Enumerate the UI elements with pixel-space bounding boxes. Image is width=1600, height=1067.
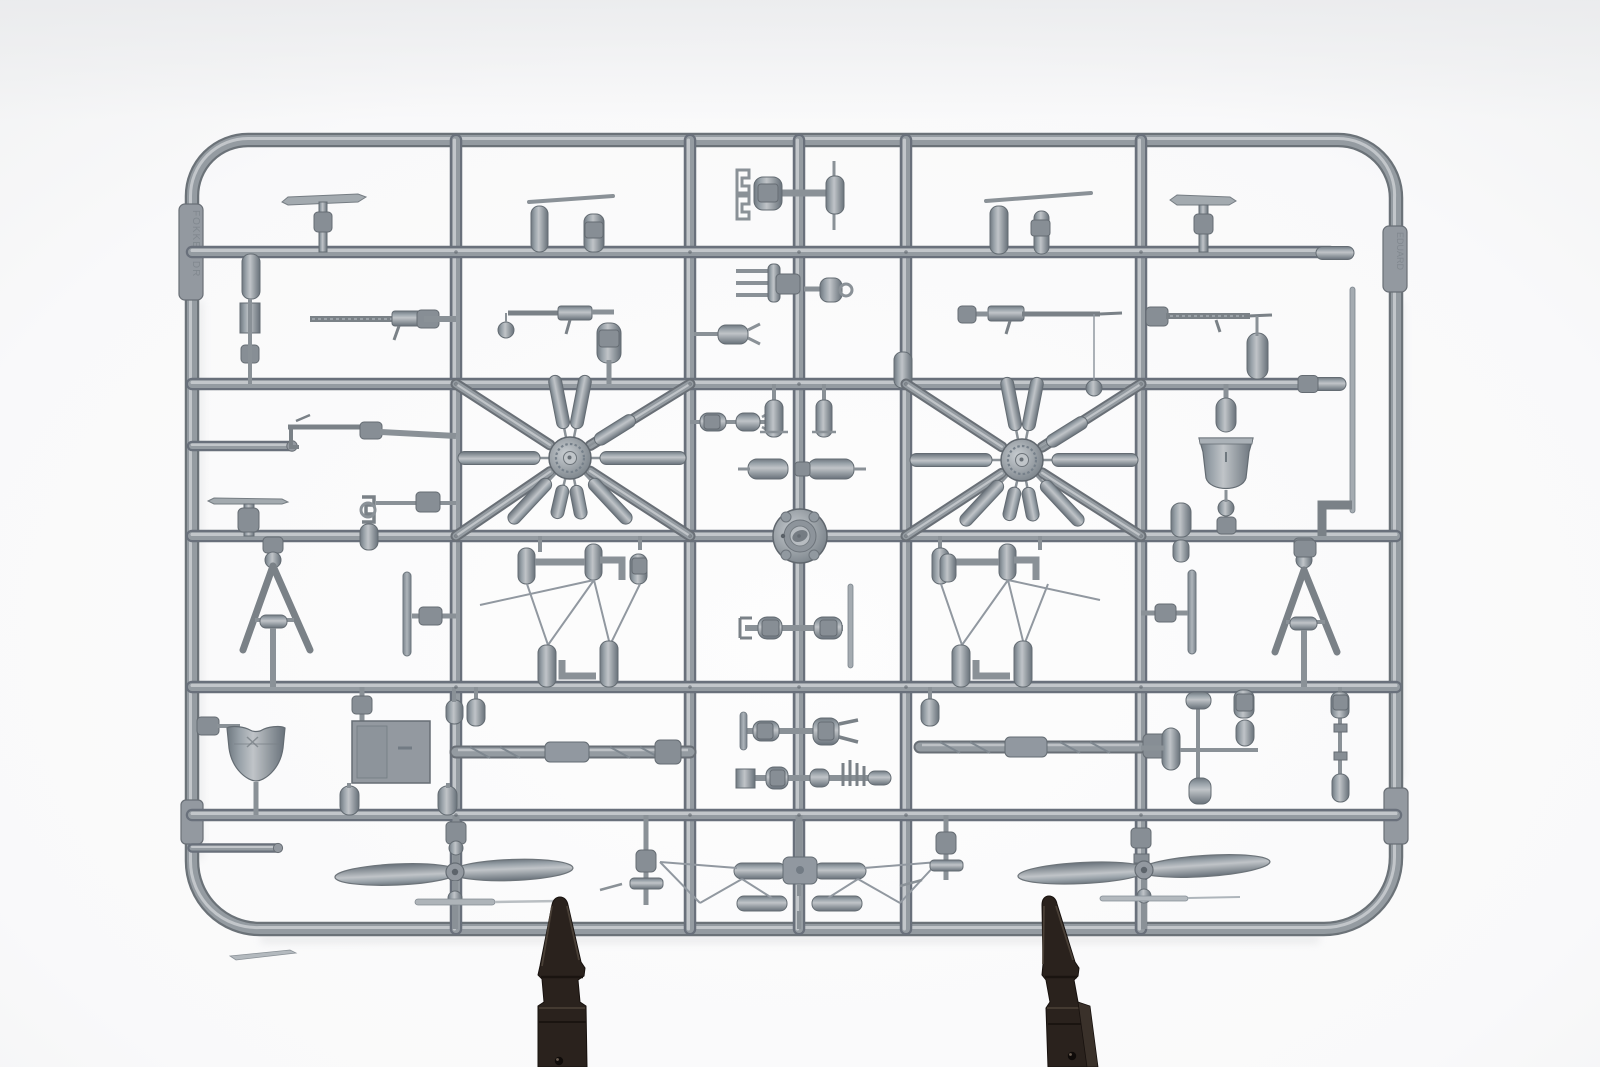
svg-text:EDUARD: EDUARD [1395,232,1405,271]
svg-text:FOKKER DR: FOKKER DR [190,210,201,277]
